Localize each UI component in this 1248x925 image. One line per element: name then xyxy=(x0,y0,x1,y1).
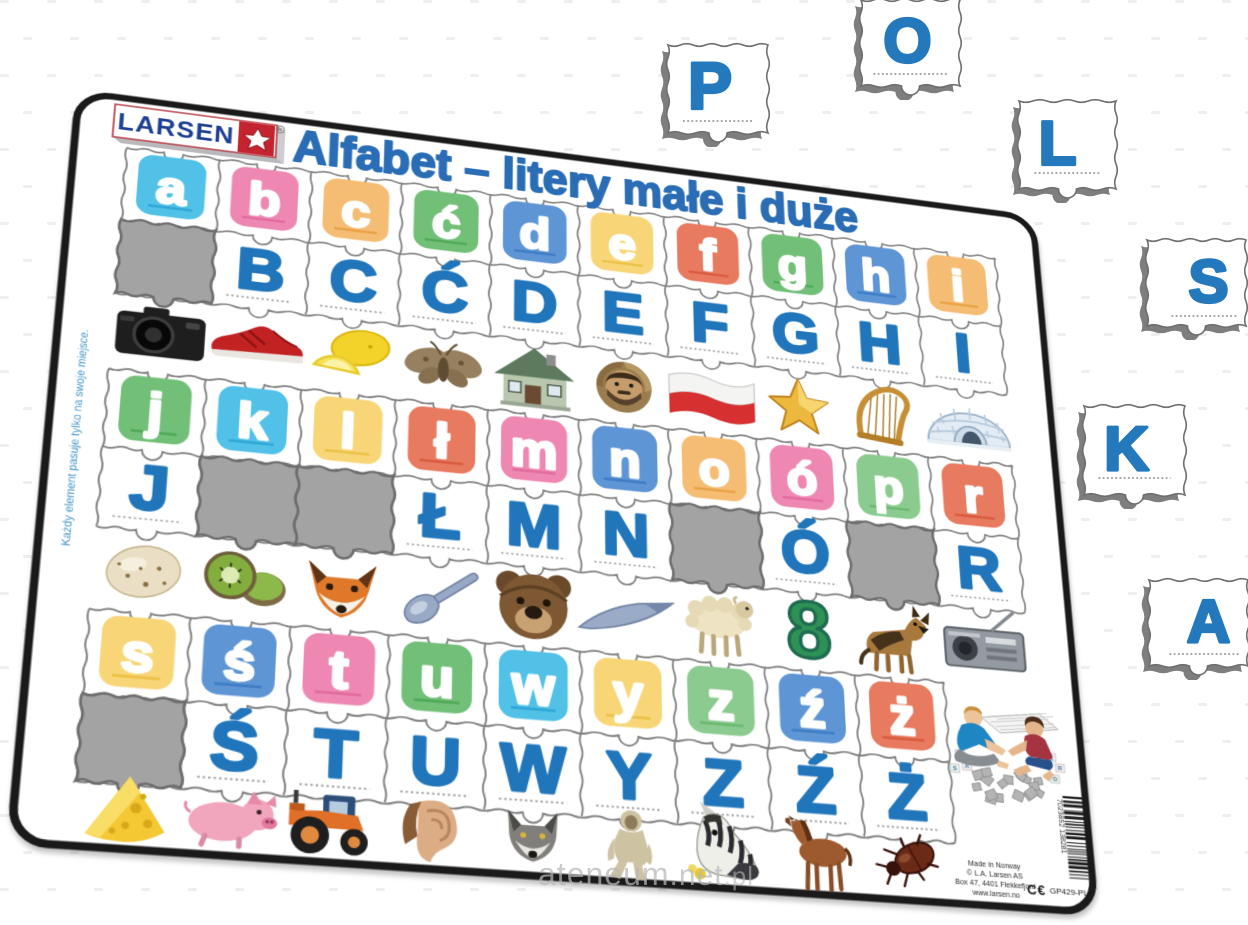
svg-text:L: L xyxy=(1039,109,1077,178)
svg-text:u: u xyxy=(419,648,454,710)
svg-text:ż: ż xyxy=(888,688,917,747)
svg-text:w: w xyxy=(510,655,554,718)
svg-text:C: C xyxy=(328,247,378,317)
svg-text:o: o xyxy=(698,441,731,498)
svg-text:z: z xyxy=(707,672,735,732)
svg-text:k: k xyxy=(235,392,269,451)
svg-text:h: h xyxy=(860,250,892,303)
svg-text:g: g xyxy=(777,239,809,292)
svg-text:Ó: Ó xyxy=(779,517,831,589)
svg-text:E: E xyxy=(602,280,645,348)
svg-text:Ł: Ł xyxy=(419,481,462,554)
svg-text:D: D xyxy=(511,269,557,338)
svg-text:G: G xyxy=(771,300,821,368)
svg-text:ó: ó xyxy=(786,451,819,507)
svg-text:Y: Y xyxy=(606,737,652,815)
svg-text:S: S xyxy=(953,766,958,773)
svg-text:m: m xyxy=(510,421,557,480)
svg-text:K: K xyxy=(1104,415,1149,484)
svg-text:J: J xyxy=(127,452,172,527)
svg-text:ś: ś xyxy=(221,631,257,694)
svg-text:C€: C€ xyxy=(1026,881,1047,898)
svg-text:s: s xyxy=(119,622,156,686)
svg-text:f: f xyxy=(699,229,717,281)
svg-text:F: F xyxy=(690,290,730,357)
svg-text:n: n xyxy=(609,432,641,489)
svg-text:d: d xyxy=(519,207,550,261)
svg-text:O: O xyxy=(883,7,931,76)
svg-text:H: H xyxy=(856,311,903,378)
svg-text:W: W xyxy=(500,729,566,809)
svg-text:ź: ź xyxy=(798,680,827,740)
svg-text:A: A xyxy=(1187,588,1230,655)
svg-text:Ć: Ć xyxy=(421,258,469,327)
svg-text:T: T xyxy=(312,714,359,793)
svg-text:ć: ć xyxy=(431,196,461,250)
svg-text:S: S xyxy=(1188,248,1228,315)
svg-text:l: l xyxy=(339,403,356,460)
svg-text:t: t xyxy=(328,640,350,702)
svg-text:P: P xyxy=(688,48,732,122)
svg-text:B: B xyxy=(234,236,286,306)
svg-text:O: O xyxy=(1052,777,1058,784)
svg-text:ł: ł xyxy=(434,413,450,469)
svg-text:R: R xyxy=(954,534,1003,605)
svg-text:b: b xyxy=(247,173,282,228)
svg-text:p: p xyxy=(872,460,905,516)
svg-text:N: N xyxy=(602,499,650,572)
svg-text:M: M xyxy=(506,489,562,563)
svg-text:Ś: Ś xyxy=(208,706,261,786)
svg-text:8: 8 xyxy=(784,583,834,676)
svg-text:e: e xyxy=(608,218,636,271)
svg-text:Ź: Ź xyxy=(794,752,837,828)
svg-text:U: U xyxy=(409,722,462,801)
svg-text:a: a xyxy=(154,161,189,216)
svg-text:y: y xyxy=(613,664,644,725)
svg-text:c: c xyxy=(340,184,371,238)
svg-text:Ż: Ż xyxy=(885,759,929,835)
